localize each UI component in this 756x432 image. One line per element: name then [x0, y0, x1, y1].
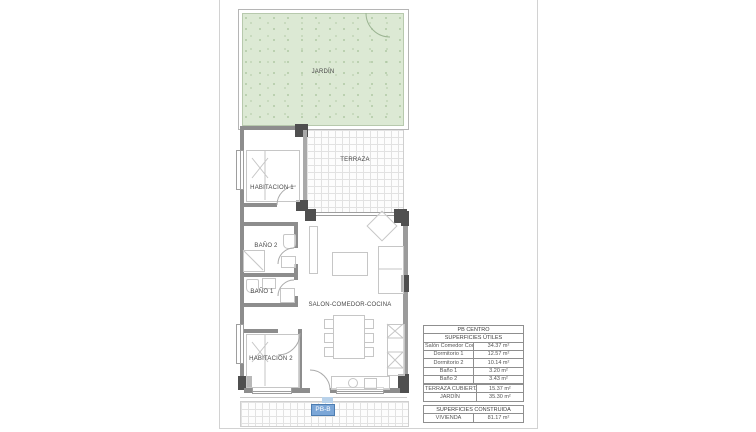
- row-label: VIVIENDA: [424, 414, 474, 422]
- habitacion1-label: HABITACION 1: [240, 185, 304, 191]
- row-label: TERRAZA CUBIERTA: [424, 385, 477, 393]
- table-header-row: SUPERFICIES ÚTILES: [424, 334, 524, 342]
- table-title-row: PB CENTRO: [424, 326, 524, 334]
- row-value: 81.17 m²: [474, 414, 524, 422]
- table-row: Salón Comedor Cocina34.37 m²: [424, 342, 524, 350]
- bano1-label: BAÑO 1: [238, 289, 286, 295]
- areas-table-exterior: TERRAZA CUBIERTA15.37 m²JARDÍN35.30 m²: [423, 384, 524, 402]
- table-row: Dormitorio 210.14 m²: [424, 359, 524, 367]
- row-value: 35.30 m²: [476, 393, 523, 401]
- salon-label: SALON-COMEDOR-COCINA: [295, 302, 405, 308]
- row-label: Baño 1: [424, 367, 474, 375]
- row-label: Baño 2: [424, 375, 474, 383]
- row-label: Salón Comedor Cocina: [424, 342, 474, 350]
- areas-table-useful: PB CENTRO SUPERFICIES ÚTILES Salón Comed…: [423, 325, 524, 384]
- built-header: SUPERFICIES CONSTRUIDA: [424, 406, 524, 414]
- row-label: JARDÍN: [424, 393, 477, 401]
- table-row: VIVIENDA81.17 m²: [424, 414, 524, 422]
- table-row: TERRAZA CUBIERTA15.37 m²: [424, 385, 524, 393]
- table-row: Dormitorio 112.57 m²: [424, 350, 524, 358]
- table-title: PB CENTRO: [424, 326, 524, 334]
- bano2-label: BAÑO 2: [240, 243, 292, 249]
- table-row: JARDÍN35.30 m²: [424, 393, 524, 401]
- row-value: 12.57 m²: [474, 350, 524, 358]
- areas-table-built: SUPERFICIES CONSTRUIDA VIVIENDA81.17 m²: [423, 405, 524, 423]
- table-row: Baño 23.43 m²: [424, 375, 524, 383]
- useful-header: SUPERFICIES ÚTILES: [424, 334, 524, 342]
- habitacion2-label: HABITACION 2: [240, 356, 302, 362]
- terraza-label: TERRAZA: [307, 157, 403, 163]
- jardin-label: JARDÍN: [242, 69, 404, 75]
- row-label: Dormitorio 1: [424, 350, 474, 358]
- table-row: Baño 13.20 m²: [424, 367, 524, 375]
- table-header-row: SUPERFICIES CONSTRUIDA: [424, 406, 524, 414]
- row-value: 3.20 m²: [474, 367, 524, 375]
- row-value: 34.37 m²: [474, 342, 524, 350]
- row-label: Dormitorio 2: [424, 359, 474, 367]
- row-value: 3.43 m²: [474, 375, 524, 383]
- row-value: 10.14 m²: [474, 359, 524, 367]
- garden-gate-arc: [366, 13, 390, 37]
- floor-plan-page: JARDÍN TERRAZA: [0, 0, 756, 432]
- row-value: 15.37 m²: [476, 385, 523, 393]
- unit-badge: PB-B: [311, 404, 335, 416]
